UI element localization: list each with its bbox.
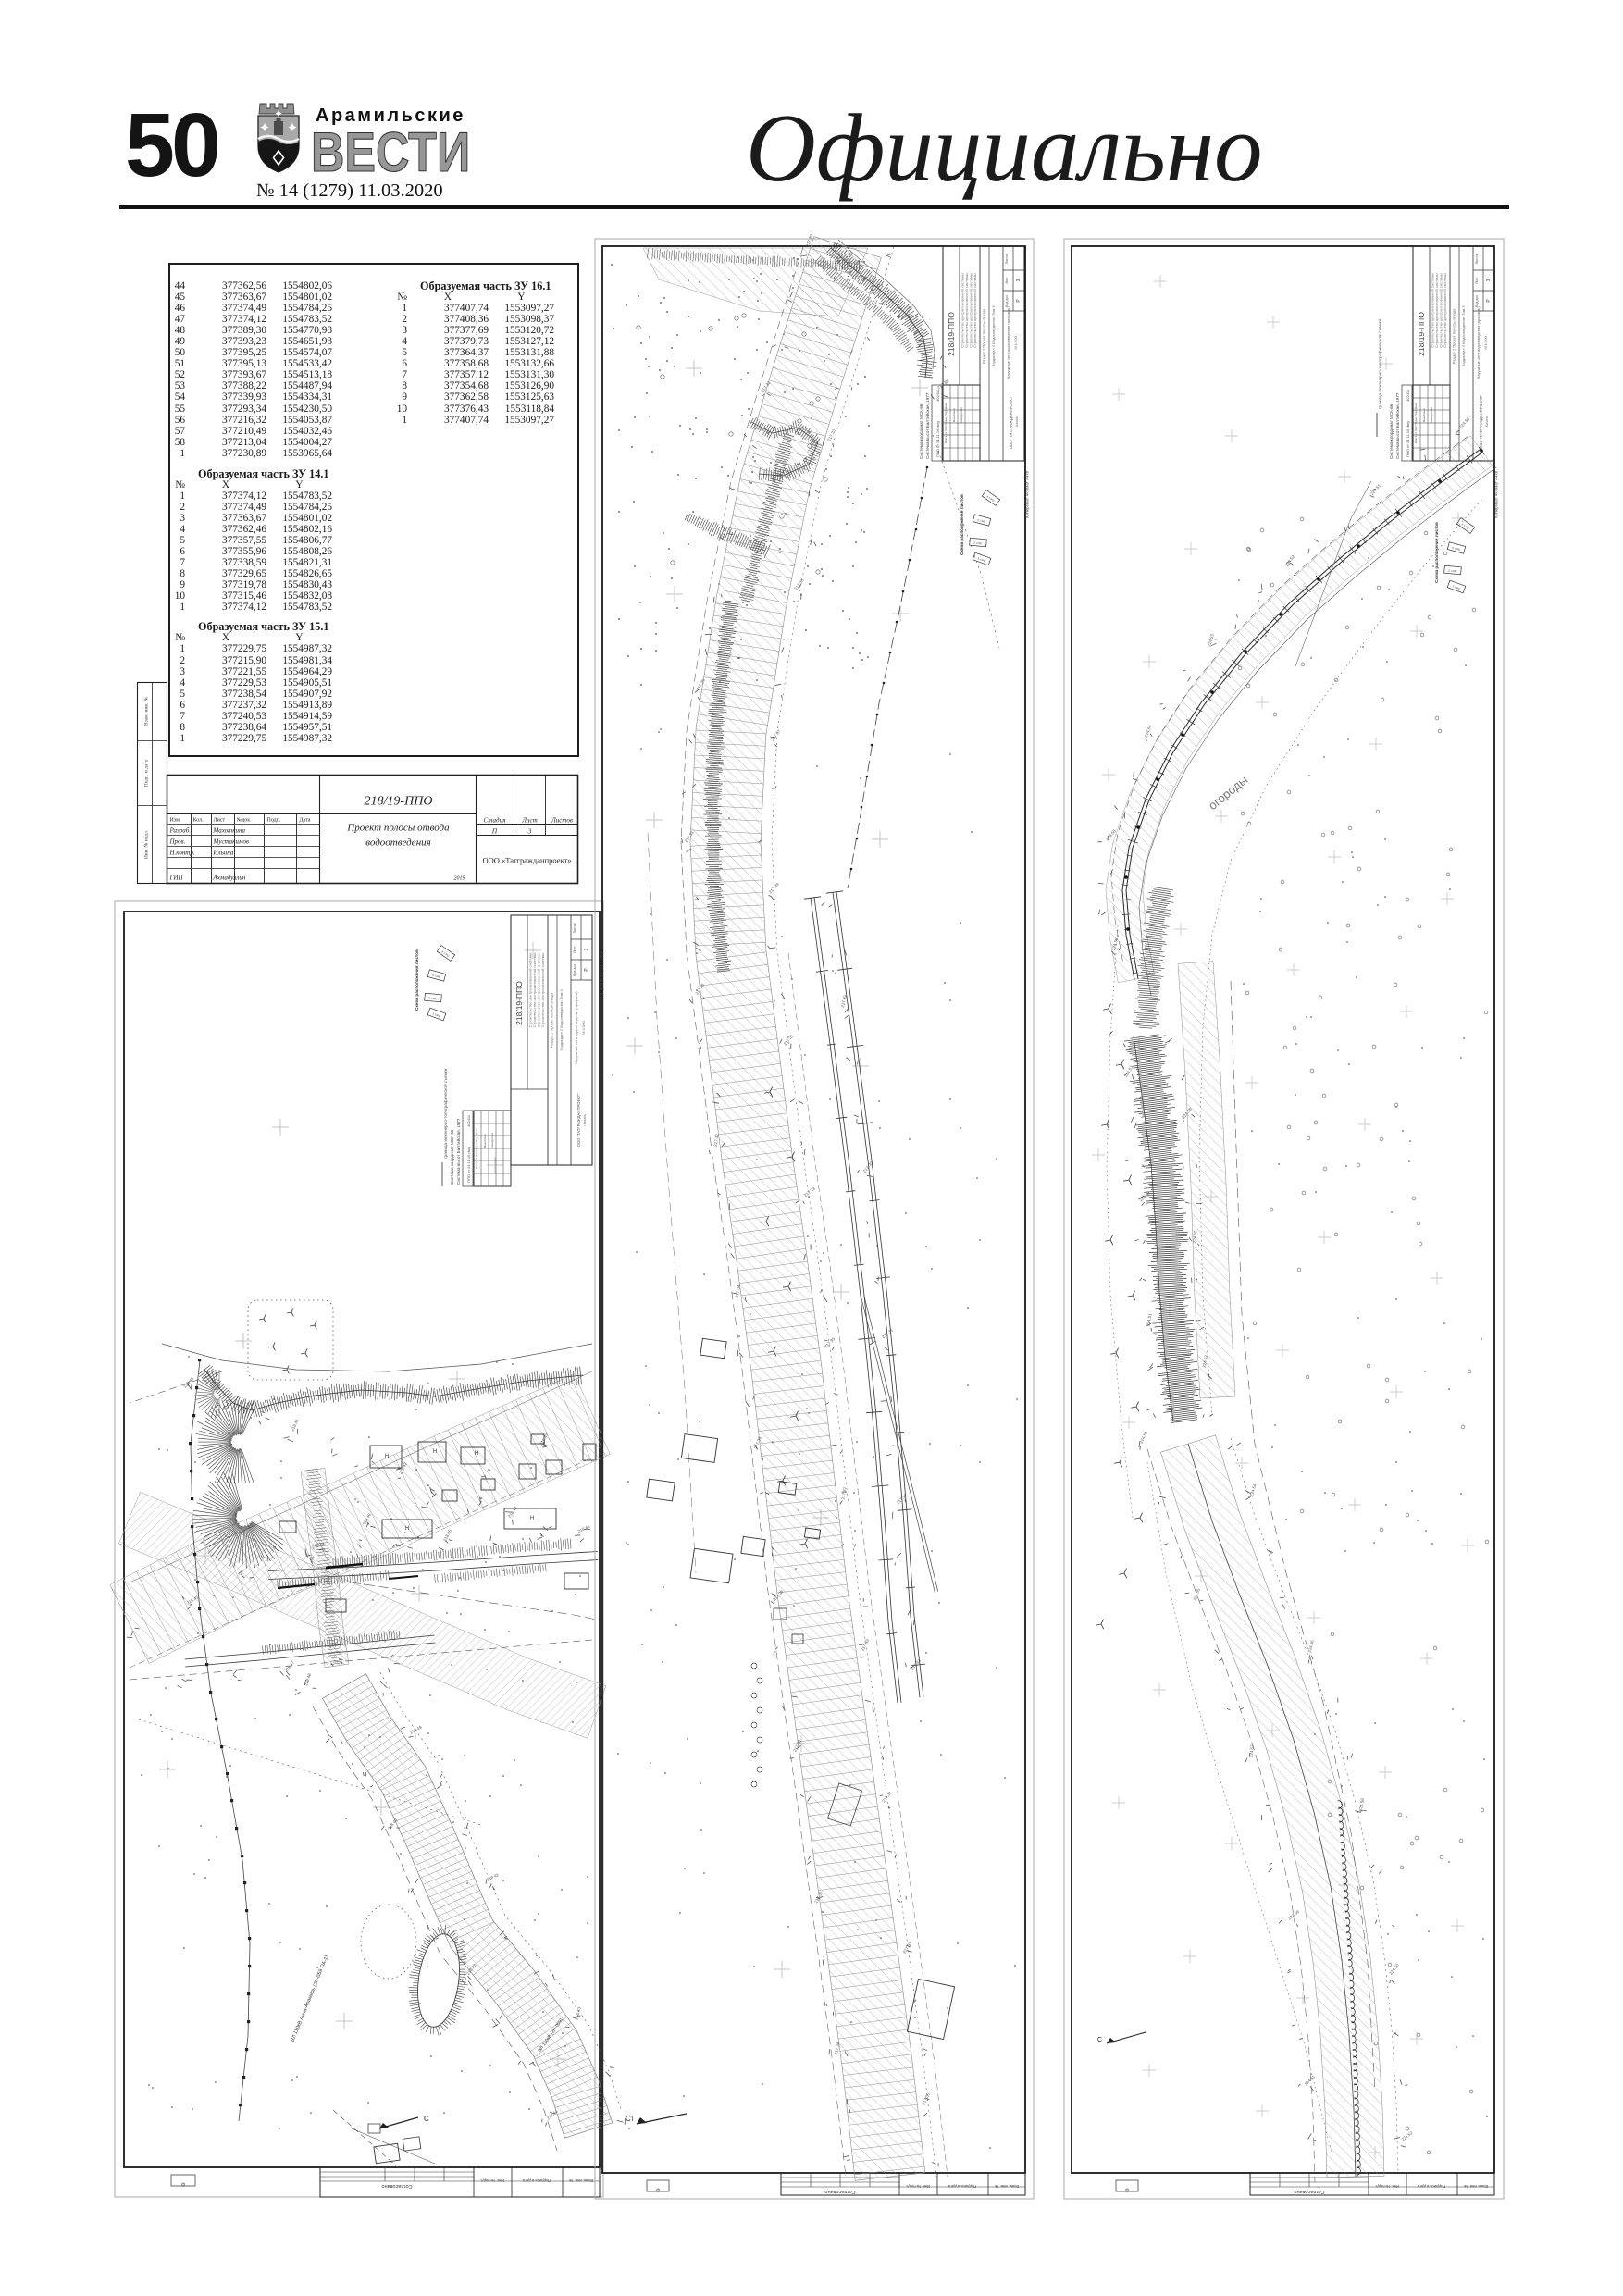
svg-text:С: С — [1097, 2037, 1102, 2043]
svg-text:огороды: огороды — [1206, 773, 1250, 813]
svg-text:ООО “ТАТГРАЖДАНПРОЕКТ”: ООО “ТАТГРАЖДАНПРОЕКТ” — [1479, 395, 1483, 450]
svg-text:М 1:500: М 1:500 — [1483, 335, 1488, 349]
svg-text:Вид док.: Вид док. — [1475, 294, 1479, 306]
svg-text:Инв. № подл.: Инв. № подл. — [1375, 2184, 1399, 2189]
svg-text:Лист 4: Лист 4 — [1460, 522, 1469, 530]
svg-text:ППО от 24.11.19.dwg: ППО от 24.11.19.dwg — [1406, 421, 1410, 457]
svg-text:224.56: 224.56 — [1307, 1639, 1315, 1653]
svg-text:Согласовано: Согласовано — [1294, 2189, 1324, 2194]
svg-text:Изм К уч Лист №док Подп Дата: Изм К уч Лист №док Подп Дата — [1414, 403, 1418, 443]
svg-text:Схема расположения листов: Схема расположения листов — [1434, 522, 1439, 583]
svg-text:г.Казань: г.Казань — [1485, 416, 1489, 428]
svg-text:Взам. инв. №: Взам. инв. № — [1464, 2184, 1488, 2189]
svg-text:Лист: Лист — [1475, 277, 1479, 284]
svg-text:Лист 2: Лист 2 — [1448, 569, 1457, 574]
svg-text:224.58: 224.58 — [1358, 1797, 1365, 1811]
svg-text:224.57: 224.57 — [1248, 1744, 1255, 1758]
svg-text:224.51: 224.51 — [1369, 483, 1381, 496]
svg-text:Подпись и дата: Подпись и дата — [1417, 2184, 1445, 2189]
svg-text:Строительство централизованной: Строительство централизованной системы — [1443, 273, 1447, 348]
svg-text:224.50: 224.50 — [1458, 416, 1470, 429]
svg-text:Листов: Листов — [1475, 254, 1479, 264]
svg-text:Наружные сети водоотведения (п: Наружные сети водоотведения (профиль) — [1476, 306, 1481, 379]
svg-text:ф: ф — [1125, 2187, 1129, 2192]
svg-text:Раздел 2 Проект полосы отвода: Раздел 2 Проект полосы отвода — [1452, 308, 1456, 364]
svg-text:Р: Р — [1486, 299, 1492, 303]
svg-text:Подраздел 2 Водоотведение. Том: Подраздел 2 Водоотведение. Том 3 — [1461, 305, 1466, 367]
svg-text:224.51: 224.51 — [1304, 2074, 1317, 2086]
svg-text:Система высот Балтийская, 1977: Система высот Балтийская, 1977 — [1394, 392, 1400, 459]
svg-text:224.54: 224.54 — [1249, 1483, 1258, 1497]
svg-text:Махоткина: Махоткина — [1422, 408, 1426, 422]
svg-text:3: 3 — [1486, 279, 1492, 281]
svg-text:Копировал: Копировал Формат А4х8 — [1494, 470, 1499, 518]
svg-text:Система координат МСК-66: Система координат МСК-66 — [1389, 403, 1394, 459]
svg-text:224.51: 224.51 — [1146, 1313, 1152, 1327]
svg-text:граница инженерно-топографичес: граница инженерно-топографической съемки — [1377, 318, 1382, 409]
svg-text:402411: 402411 — [1406, 389, 1410, 402]
svg-text:224.55: 224.55 — [1193, 1587, 1201, 1601]
svg-text:224.53: 224.53 — [1138, 1430, 1148, 1444]
svg-text:Ахмадуллин: Ахмадуллин — [1430, 407, 1433, 424]
svg-text:Лист 1: Лист 1 — [1451, 584, 1460, 590]
svg-text:224.50: 224.50 — [1388, 1962, 1400, 1975]
svg-text:218/19-ППО: 218/19-ППО — [1417, 312, 1426, 356]
svg-text:224.52: 224.52 — [1401, 2130, 1414, 2142]
svg-text:224.52: 224.52 — [1284, 554, 1295, 568]
